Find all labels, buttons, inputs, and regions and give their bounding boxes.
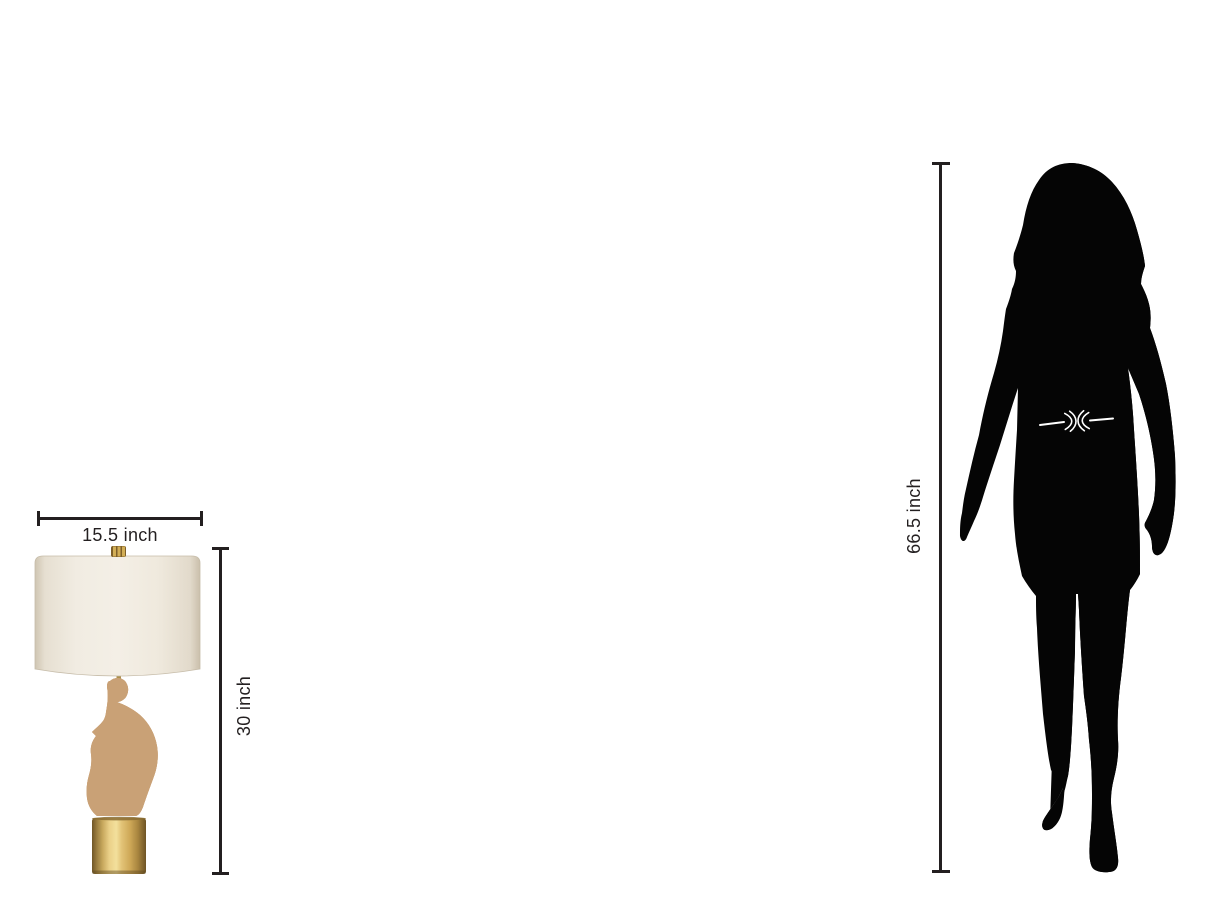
dimension-end-cap <box>212 872 229 875</box>
person-height-label: 66.5 inch <box>903 456 925 576</box>
size-comparison-canvas: 15.5 inch 30 inch 66.5 inch <box>0 0 1214 911</box>
lamp-base <box>92 817 146 874</box>
woman-silhouette-body <box>960 163 1176 872</box>
woman-silhouette <box>940 158 1190 878</box>
dimension-end-cap <box>212 547 229 550</box>
dimension-line <box>219 547 222 875</box>
dimension-end-cap <box>932 870 950 873</box>
dimension-line <box>37 517 203 520</box>
person-height-dimension-line <box>932 162 950 873</box>
lamp-finial <box>111 546 126 557</box>
lamp-height-label: 30 inch <box>233 646 255 766</box>
dimension-end-cap <box>200 511 203 526</box>
dimension-end-cap <box>37 511 40 526</box>
lamp-height-dimension-line <box>212 547 229 875</box>
dimension-end-cap <box>932 162 950 165</box>
lamp-shade <box>35 556 200 676</box>
table-lamp-image <box>30 540 215 880</box>
lamp-width-label: 15.5 inch <box>55 524 185 546</box>
lamp-sculpture-body <box>87 678 158 816</box>
dimension-line <box>939 162 942 873</box>
